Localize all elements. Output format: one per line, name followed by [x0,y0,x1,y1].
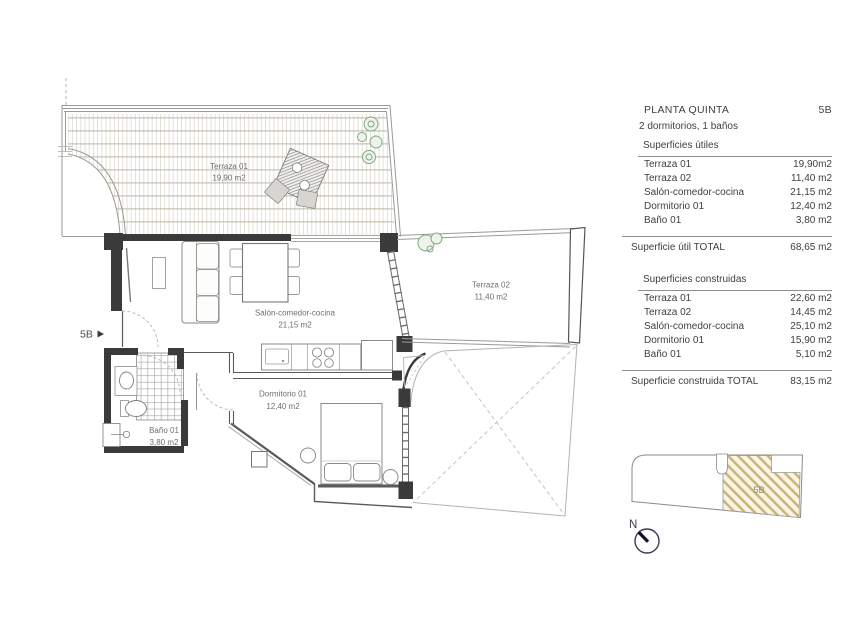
window-glazing [291,236,380,242]
kitchen-counter [262,341,393,371]
washbasin [120,372,134,389]
row-label: Baño 01 [622,214,681,227]
bano-01-area-label: 3,80 m2 [150,438,179,447]
terraza-02-area-label: 11,40 m2 [475,293,508,302]
nightstand [383,470,398,485]
row-label: Terraza 01 [622,292,691,305]
bano-01-name-label: Baño 01 [149,426,179,435]
row-value: 3,80 m2 [796,214,832,227]
plan-title: PLANTA QUINTA [622,104,729,117]
unit-code: 5B [819,104,832,117]
toilet [126,401,147,417]
wall-pier [392,371,402,381]
terraza-01-area-label: 19,90 m2 [212,174,246,183]
bedroom-top-wall [233,373,398,379]
dining-set [230,244,300,303]
terrace2-plant [418,233,442,252]
slanted-wall-inner [229,427,312,486]
floor-plan-sheet: Terraza 01 19,90 m2 [0,0,856,633]
kitchen-sink [266,349,289,364]
built-total-row: Superficie construida TOTAL 83,15 m2 [622,374,832,388]
row-label: Baño 01 [622,348,681,361]
glazed-wall-mullions [391,252,407,338]
room-terraza-01: Terraza 01 19,90 m2 [58,78,401,237]
total-label: Superficie útil TOTAL [622,241,725,254]
pillow [325,464,352,482]
row-label: Terraza 02 [622,172,691,185]
sofa [182,242,219,324]
pillow [354,464,381,482]
panel-header: PLANTA QUINTA 5B [622,103,832,117]
north-indicator: N [629,519,659,553]
row-value: 25,10 m2 [790,320,832,333]
entry-marker: 5B [80,329,104,341]
room-salon: Salón-comedor-cocina 21,15 m2 [104,233,398,370]
locator-unit-label: 5B [753,485,765,496]
useful-areas-title: Superficies útiles [638,139,832,157]
table-row: Terraza 01 22,60 m2 [622,291,832,305]
row-value: 19,90m2 [793,158,832,171]
area-summary-panel: PLANTA QUINTA 5B 2 dormitorios, 1 baños … [622,103,832,388]
side-table [153,258,166,289]
table-row: Dormitorio 01 12,40 m2 [622,199,832,213]
wall-pier [399,389,411,408]
terrace2-right-wall [569,228,586,344]
table-row: Terraza 01 19,90m2 [622,157,832,171]
built-areas-title: Superficies construidas [638,273,832,291]
row-value: 14,45 m2 [790,306,832,319]
wall-left [111,233,122,311]
dormitorio-01-area-label: 12,40 m2 [266,402,300,411]
row-value: 12,40 m2 [790,200,832,213]
divider [622,236,832,237]
total-label: Superficie construida TOTAL [622,375,758,388]
row-label: Terraza 01 [622,158,691,171]
table-row: Baño 01 3,80 m2 [622,213,832,227]
table-row: Salón-comedor-cocina 25,10 m2 [622,319,832,333]
divider [622,370,832,371]
row-label: Salón-comedor-cocina [622,186,744,199]
plan-subtitle: 2 dormitorios, 1 baños [622,120,832,133]
row-label: Dormitorio 01 [622,334,704,347]
row-value: 15,90 m2 [790,334,832,347]
shaft-box [103,424,120,447]
terraza-02-name-label: Terraza 02 [472,281,510,290]
glazed-wall-rails [388,251,410,338]
bedroom-door-swing [197,373,234,410]
tv-unit [127,248,131,302]
wall-pier [399,482,414,500]
row-label: Dormitorio 01 [622,200,704,213]
table-row: Salón-comedor-cocina 21,15 m2 [622,185,832,199]
entry-arrow-icon [98,331,105,338]
nightstand [301,448,316,463]
dormitorio-01-name-label: Dormitorio 01 [259,390,308,399]
entry-door-swing [122,311,158,347]
terraza-01-name-label: Terraza 01 [210,162,248,171]
roof-x-diagonals [415,347,576,515]
north-letter: N [629,519,637,531]
room-dormitorio-01: Dormitorio 01 12,40 m2 [184,353,412,508]
room-bano-01: Baño 01 3,80 m2 [103,348,188,453]
wardrobe [252,452,268,468]
row-value: 11,40 m2 [791,172,832,185]
row-value: 5,10 m2 [796,348,832,361]
table-row: Baño 01 5,10 m2 [622,347,832,361]
entry-unit-label: 5B [80,329,93,341]
salon-name-label: Salón-comedor-cocina [255,309,336,318]
row-label: Salón-comedor-cocina [622,320,744,333]
fixture-point [123,431,129,437]
useful-total-row: Superficie útil TOTAL 68,65 m2 [622,240,832,254]
total-value: 68,65 m2 [790,241,832,254]
building-locator: 5B [632,454,803,518]
hall-walls [184,353,234,425]
roof-outline [413,345,577,517]
roof-void-area [399,345,578,517]
table-row: Terraza 02 14,45 m2 [622,305,832,319]
bedroom-window-rails [403,407,409,482]
salon-area-label: 21,15 m2 [278,321,312,330]
stair-core [717,454,728,474]
room-terraza-02: Terraza 02 11,40 m2 [388,228,586,353]
table-row: Terraza 02 11,40 m2 [622,171,832,185]
row-label: Terraza 02 [622,306,691,319]
wall-top [104,234,291,241]
total-value: 83,15 m2 [790,375,832,388]
row-value: 21,15 m2 [790,186,832,199]
table-row: Dormitorio 01 15,90 m2 [622,333,832,347]
wall-pier [380,233,398,252]
row-value: 22,60 m2 [790,292,832,305]
